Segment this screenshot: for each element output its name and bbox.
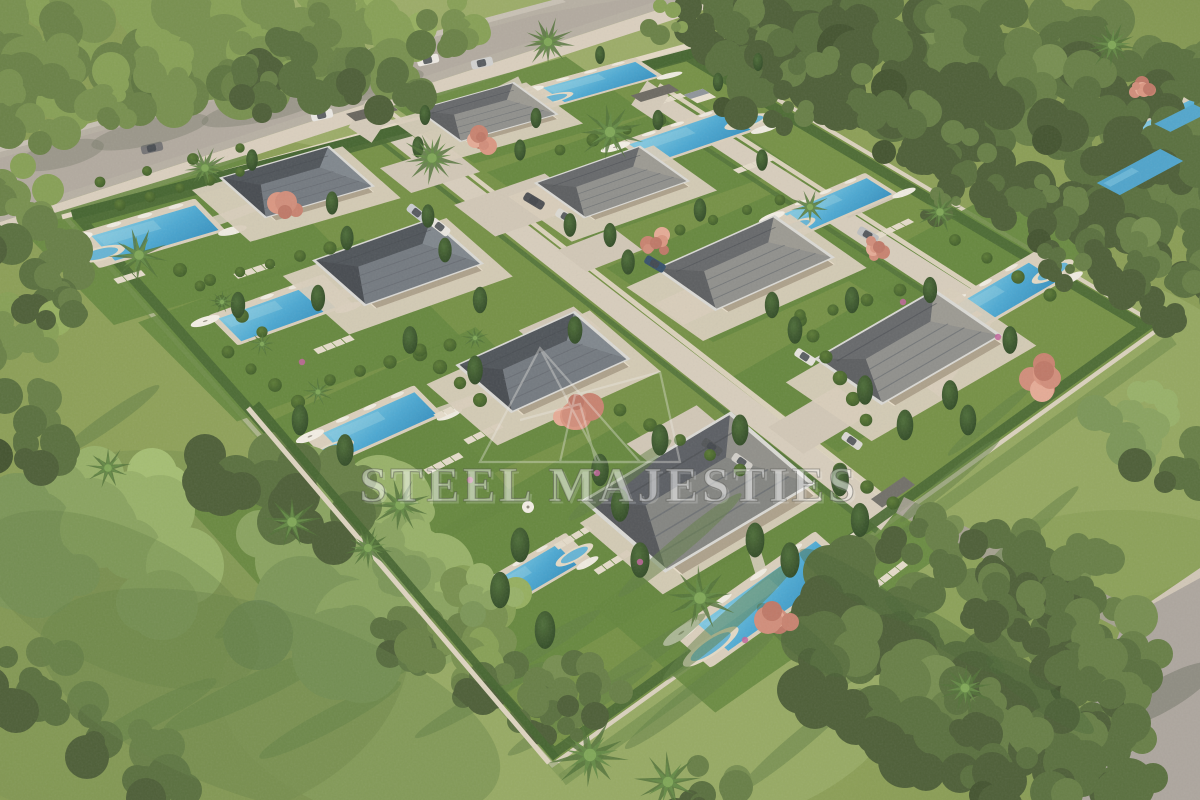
- svg-text:STEEL MAJESTIES: STEEL MAJESTIES: [359, 457, 858, 512]
